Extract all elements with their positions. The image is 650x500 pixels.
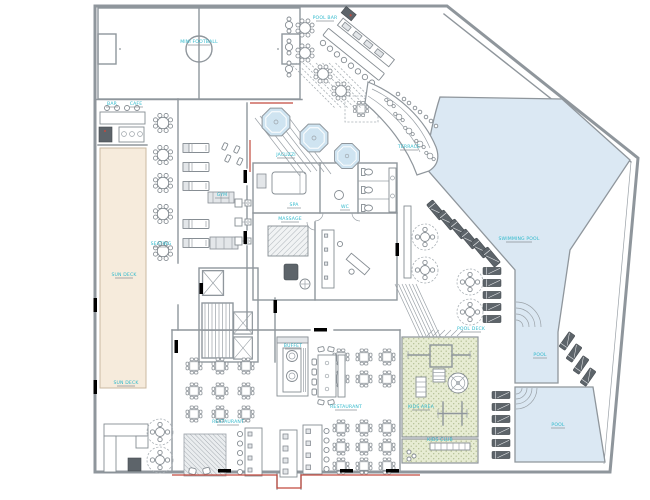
round-table-icon (314, 65, 332, 83)
label-pool-deck: POOL DECK (457, 326, 486, 332)
label-jacuzzi: JACUZZI (275, 152, 296, 158)
ottoman-icon (128, 458, 141, 471)
svg-text:TERRACE: TERRACE (397, 144, 420, 150)
sun-lounger-icon (492, 391, 510, 398)
chef-table (312, 346, 345, 405)
sun-lounger-icon (492, 439, 510, 446)
svg-text:SUN DECK: SUN DECK (111, 272, 137, 278)
round-table-icon (153, 204, 172, 223)
toilet-icon (362, 187, 373, 194)
treadmill-icon (183, 239, 209, 248)
label-pitch: MINI FOOTBALL (180, 39, 218, 45)
svg-text:SEATING: SEATING (151, 241, 172, 247)
door-marker (314, 328, 327, 332)
table-icon (356, 420, 372, 436)
gym-machine-icon (235, 218, 251, 226)
label-seating: SEATING (151, 241, 172, 247)
sun-lounger-icon (483, 303, 501, 310)
umbrella-table-icon (147, 447, 173, 473)
svg-text:CAFE: CAFE (130, 101, 143, 107)
umbrella-table-icon (412, 257, 438, 283)
sun-lounger-icon (492, 415, 510, 422)
elevator-icon (234, 312, 253, 334)
svg-text:KIDS AREA: KIDS AREA (408, 404, 435, 410)
label-spa: SPA (287, 202, 301, 208)
gym-machine-icon (235, 199, 251, 207)
umbrella-table-icon (412, 224, 438, 250)
label-terrace: TERRACE (397, 144, 420, 150)
spa-block (253, 163, 411, 300)
floor-plan-canvas: MINI FOOTBALL POOL BAR BAR CAFE SUN DECK… (0, 0, 650, 500)
door-marker (244, 231, 248, 244)
label-main-pool: SWIMMING POOL (498, 236, 539, 242)
table-icon (186, 383, 202, 399)
toilet-icon (362, 169, 373, 176)
label-restaurant-2: RESTAURANT (330, 404, 362, 410)
table-icon (212, 383, 228, 399)
door-marker (396, 243, 400, 256)
table-icon (333, 439, 349, 455)
label-pool-bar: POOL BAR (313, 15, 338, 21)
treadmill-icon (183, 144, 209, 153)
reception-desk (341, 253, 370, 281)
sink (257, 174, 266, 188)
sun-lounger-icon (566, 344, 582, 363)
table-icon (356, 439, 372, 455)
kids-bench (430, 443, 470, 450)
label-cafe: CAFE (129, 101, 143, 107)
sun-lounger-icon (573, 356, 589, 375)
door-marker (175, 340, 179, 353)
table-icon (212, 358, 228, 374)
umbrella-table-icon (457, 269, 483, 295)
round-table-icon (153, 173, 172, 192)
label-massage: MASSAGE (278, 216, 302, 222)
table-icon (379, 439, 395, 455)
svg-text:POOL: POOL (551, 422, 564, 428)
svg-text:SUN DECK: SUN DECK (113, 380, 139, 386)
sun-lounger-icon (580, 368, 596, 387)
umbrella-table-icon (147, 419, 173, 445)
top-terrace-tables (285, 17, 350, 100)
table-icon (356, 349, 372, 365)
table-icon (379, 349, 395, 365)
table-icon (186, 406, 202, 422)
door-marker (386, 469, 399, 473)
sun-lounger-icon (492, 427, 510, 434)
svg-text:GYM: GYM (217, 192, 228, 198)
jacuzzi-icon (334, 143, 359, 168)
treadmill-icon (183, 182, 209, 191)
door-marker (244, 170, 248, 183)
sun-lounger-icon (483, 267, 501, 274)
label-upper-pool: POOL (533, 352, 547, 358)
table-icon (238, 358, 254, 374)
sun-lounger-icon (483, 291, 501, 298)
football-pitch (98, 8, 300, 99)
treadmill-icon (183, 220, 209, 229)
svg-text:RESTAURANT: RESTAURANT (212, 419, 244, 425)
treadmill-icon (183, 163, 209, 172)
svg-text:MASSAGE: MASSAGE (278, 216, 302, 222)
elevator-icon (203, 271, 224, 296)
buffet-counters (237, 425, 329, 477)
svg-text:POOL DECK: POOL DECK (457, 326, 486, 332)
toilet-icon (362, 205, 373, 212)
jacuzzi-icon (300, 124, 328, 152)
label-buffet: BUFFET (284, 343, 302, 349)
round-table-icon (296, 44, 314, 62)
carousel (448, 373, 468, 393)
sun-lounger-icon (483, 279, 501, 286)
massage-bed-2 (268, 226, 308, 256)
round-table-icon (153, 113, 172, 132)
floor-plan-drawing: MINI FOOTBALL POOL BAR BAR CAFE SUN DECK… (0, 0, 650, 500)
svg-text:RESTAURANT: RESTAURANT (330, 404, 362, 410)
umbrella-table-icon (457, 299, 483, 325)
door-marker (340, 469, 353, 473)
sun-lounger-icon (559, 332, 575, 351)
sun-lounger-icon (483, 315, 501, 322)
planter-strip (404, 206, 411, 278)
label-gym: GYM (215, 192, 229, 198)
bar-counter (100, 112, 145, 124)
elevator-icon (234, 337, 253, 359)
svg-text:BUFFET: BUFFET (284, 343, 302, 349)
gym-machine-icon (235, 237, 251, 245)
jacuzzi-terrace (255, 96, 378, 176)
lounge-corner (104, 419, 226, 476)
table-icon (356, 371, 372, 387)
label-wc: WC (340, 204, 350, 210)
label-kids-club: KIDS CLUB (427, 437, 453, 443)
svg-text:WC: WC (341, 204, 349, 210)
lounge-tables (153, 113, 172, 260)
building-core (199, 268, 275, 362)
svg-text:MINI FOOTBALL: MINI FOOTBALL (180, 39, 218, 45)
label-lower-pool: POOL (551, 422, 565, 428)
terrace-wing (365, 82, 438, 175)
fridge-icon (99, 127, 112, 142)
svg-text:SPA: SPA (290, 202, 300, 208)
table-icon (333, 420, 349, 436)
climber (416, 377, 426, 397)
label-kids-area: KIDS AREA (408, 404, 435, 410)
svg-text:BAR: BAR (107, 101, 118, 107)
door-marker (200, 283, 204, 294)
round-table-icon (153, 145, 172, 164)
svg-text:JACUZZI: JACUZZI (275, 152, 296, 158)
table-icon (238, 383, 254, 399)
svg-text:POOL: POOL (533, 352, 546, 358)
svg-text:KIDS CLUB: KIDS CLUB (427, 437, 453, 443)
svg-text:SWIMMING POOL: SWIMMING POOL (498, 236, 539, 242)
armchair-icon (284, 264, 298, 280)
door-marker (274, 300, 278, 313)
back-shelf (119, 127, 144, 142)
massage-bed (272, 172, 306, 194)
round-table-icon (332, 82, 350, 100)
jacuzzi-icon (262, 108, 290, 136)
label-sun-deck-2: SUN DECK (113, 380, 139, 386)
label-sun-deck-1: SUN DECK (111, 272, 137, 278)
sun-lounger-icon (492, 403, 510, 410)
door-marker (218, 469, 231, 473)
goal-box-left (98, 34, 116, 64)
label-restaurant-1: RESTAURANT (212, 419, 244, 425)
sun-lounger-icon (492, 451, 510, 458)
door-marker (94, 298, 98, 312)
door-marker (94, 380, 98, 394)
table-icon (379, 371, 395, 387)
label-bar: BAR (106, 101, 118, 107)
small-table-icon (285, 17, 292, 33)
table-icon (379, 420, 395, 436)
sun-deck (100, 148, 146, 388)
small-table-icon (285, 39, 292, 55)
sink-counter (389, 168, 396, 212)
svg-text:POOL BAR: POOL BAR (313, 15, 338, 21)
